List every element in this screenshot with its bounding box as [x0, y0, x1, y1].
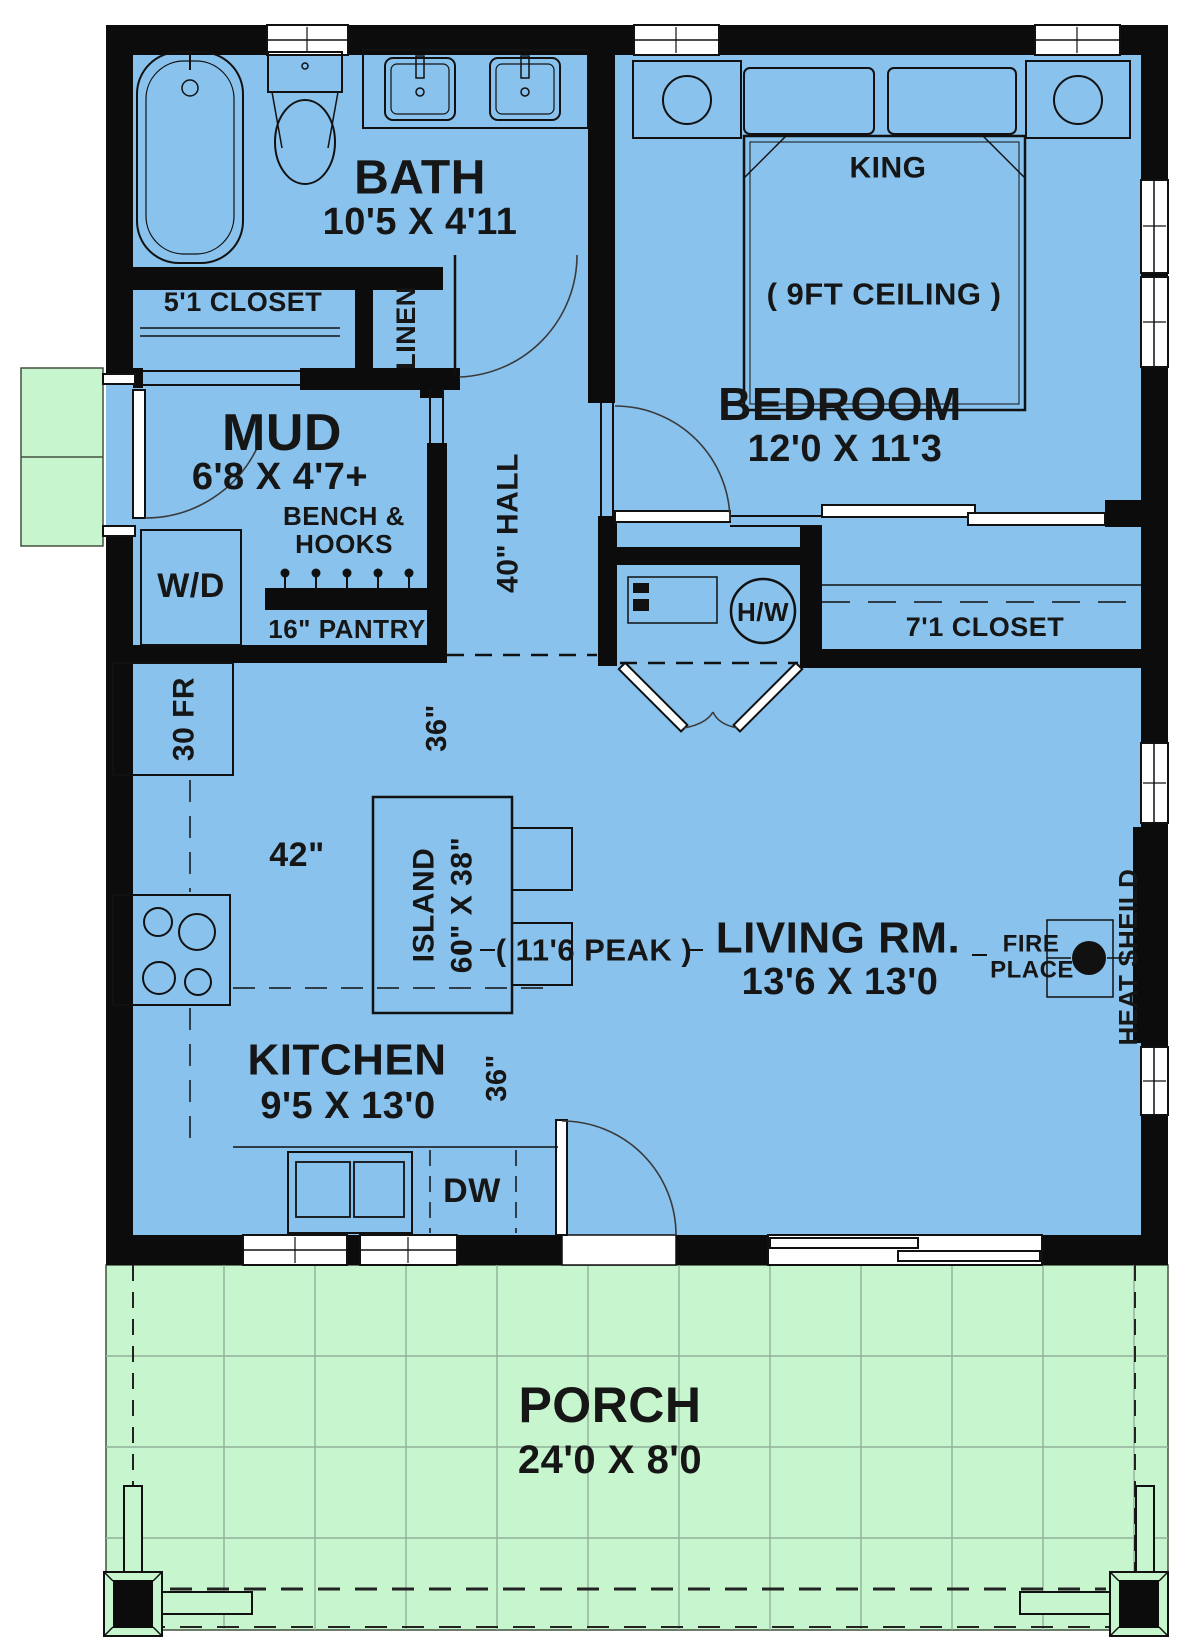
fridge-label: 30 FR: [168, 677, 201, 761]
island-label-1: ISLAND: [408, 848, 441, 963]
bench-front: [265, 588, 428, 610]
living-dims: 13'6 X 13'0: [742, 961, 939, 1003]
bench-hooks-label-1: BENCH &: [283, 501, 405, 531]
bedroom-dims: 12'0 X 11'3: [748, 428, 943, 470]
wood-stove: [1072, 941, 1106, 975]
window-kitchen-2: [360, 1235, 457, 1265]
window-bedroom-top-right: [1035, 25, 1120, 55]
bench-hooks-label-2: HOOKS: [295, 529, 393, 559]
window-kitchen-1: [243, 1235, 347, 1265]
closet-5-1-label: 5'1 CLOSET: [164, 287, 322, 317]
window-living-right-2: [1141, 1047, 1168, 1115]
peak-label: ( 11'6 PEAK ): [496, 933, 693, 968]
window-bedroom-top-left: [634, 25, 719, 55]
pantry-label: 16" PANTRY: [268, 614, 425, 644]
sliding-door-porch: [768, 1235, 1042, 1265]
water-heater-label: H/W: [737, 597, 789, 627]
fireplace-label-2: PLACE: [990, 957, 1074, 984]
floor-plan: BATH 10'5 X 4'11 5'1 CLOSET LINEN MUD 6'…: [0, 0, 1200, 1644]
king-bed-label: KING: [850, 152, 927, 185]
island-label-2: 60" X 38": [446, 837, 479, 973]
window-living-right-1: [1141, 743, 1168, 823]
porch-label: PORCH: [518, 1377, 701, 1433]
porch-dims: 24'0 X 8'0: [518, 1438, 702, 1482]
kitchen-label: KITCHEN: [247, 1036, 446, 1085]
bath-dims: 10'5 X 4'11: [323, 201, 518, 243]
mud-label: MUD: [222, 404, 342, 462]
dim-36-island-label: 36": [421, 704, 453, 752]
heat-shield-label: HEAT SHEILD: [1113, 869, 1143, 1046]
mud-entry-stoop: [21, 368, 103, 546]
ceiling-label: ( 9FT CEILING ): [767, 277, 1002, 312]
bedroom-label: BEDROOM: [718, 378, 962, 430]
floor-plan-drawing: BATH 10'5 X 4'11 5'1 CLOSET LINEN MUD 6'…: [0, 0, 1200, 1644]
linen-label: LINEN: [391, 286, 421, 370]
kitchen-dims: 9'5 X 13'0: [260, 1085, 435, 1127]
fireplace-label-1: FIRE: [1003, 931, 1060, 958]
living-label: LIVING RM.: [716, 914, 961, 963]
dishwasher-label: DW: [443, 1172, 501, 1210]
mud-door-opening: [103, 374, 135, 536]
dim-36-kitchen-label: 36": [481, 1054, 513, 1102]
washer-dryer-label: W/D: [157, 567, 225, 605]
hall-label: 40" HALL: [492, 453, 525, 593]
bath-label: BATH: [354, 152, 486, 205]
entry-door-opening: [562, 1235, 676, 1265]
window-bath: [267, 25, 348, 55]
mud-dims: 6'8 X 4'7+: [192, 456, 368, 498]
dim-42-label: 42": [269, 836, 324, 874]
window-bedroom-right-2: [1141, 277, 1168, 367]
window-bedroom-right-1: [1141, 180, 1168, 273]
closet-7-1-label: 7'1 CLOSET: [906, 612, 1064, 642]
